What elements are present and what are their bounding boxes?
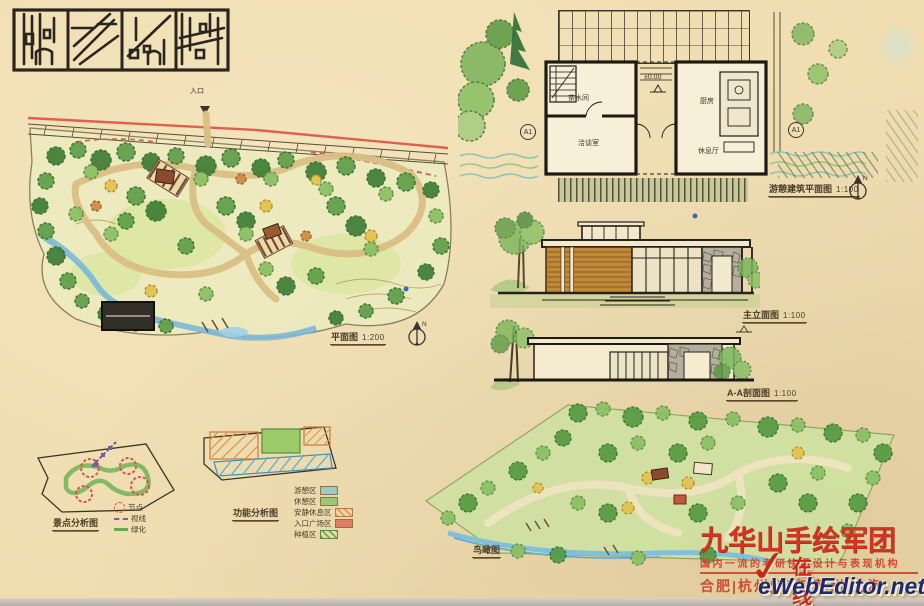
paint-wash (876, 22, 920, 68)
node-analysis-legend: 节点 视线 绿化 (114, 502, 146, 535)
axis-grid-right: A1 (788, 122, 804, 138)
svg-text:N: N (422, 321, 427, 328)
zoning-diagram-title: 功能分析图 (232, 506, 279, 521)
zoning-legend: 游憩区 休憩区 安静休息区 入口广场区 种植区 (294, 485, 353, 540)
ink-texture-sketch (10, 6, 232, 78)
node-analysis-title: 景点分析图 (52, 516, 99, 531)
drawing-board: 入口 平面图1:200 N (0, 0, 924, 606)
watermark-en-text: eWebEditor.net (758, 573, 924, 600)
zone-swatch (320, 497, 338, 506)
north-arrow-icon: N (405, 318, 429, 348)
node-analysis-drawing (28, 438, 186, 516)
zone-swatch (335, 508, 353, 517)
zone-swatch (320, 486, 338, 495)
node-legend-icon (114, 502, 125, 513)
zone-swatch (320, 530, 338, 539)
site-plan-title: 平面图1:200 (330, 330, 386, 345)
site-entrance-label: 入口 (190, 88, 204, 95)
svg-text:N: N (863, 175, 868, 182)
edge-planting-hatch (886, 110, 918, 182)
zone-swatch (335, 519, 353, 528)
site-plan-drawing (16, 84, 460, 350)
aerial-view-title: 鸟瞰图 (472, 543, 501, 558)
greenery-legend-icon (114, 528, 128, 531)
axis-grid-left: A1 (520, 124, 536, 140)
sightline-legend-icon (114, 518, 128, 520)
hedge-band (558, 178, 748, 202)
room-label-kitchen: 厨房 (700, 98, 714, 105)
zoning-diagram-drawing (198, 424, 342, 484)
room-label-lounge: 休息厅 (698, 148, 719, 155)
front-elevation-drawing (490, 210, 760, 316)
room-label-tea: 茶水间 (568, 95, 589, 102)
level-mark-label: ±0.00 (644, 74, 661, 81)
room-label-meeting: 洽谈室 (578, 140, 599, 147)
north-arrow-icon: N (846, 172, 870, 202)
